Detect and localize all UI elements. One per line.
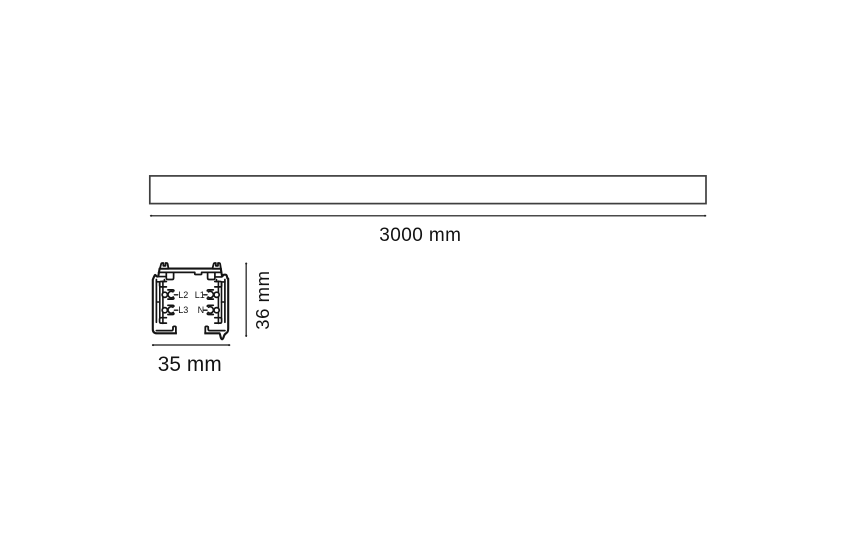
svg-text:N: N [198, 305, 205, 315]
svg-text:L3: L3 [178, 305, 188, 315]
svg-text:35 mm: 35 mm [158, 353, 222, 376]
svg-text:L2: L2 [178, 290, 188, 300]
svg-text:3000 mm: 3000 mm [379, 225, 461, 246]
svg-text:L1: L1 [195, 290, 205, 300]
svg-text:36 mm: 36 mm [252, 270, 273, 329]
